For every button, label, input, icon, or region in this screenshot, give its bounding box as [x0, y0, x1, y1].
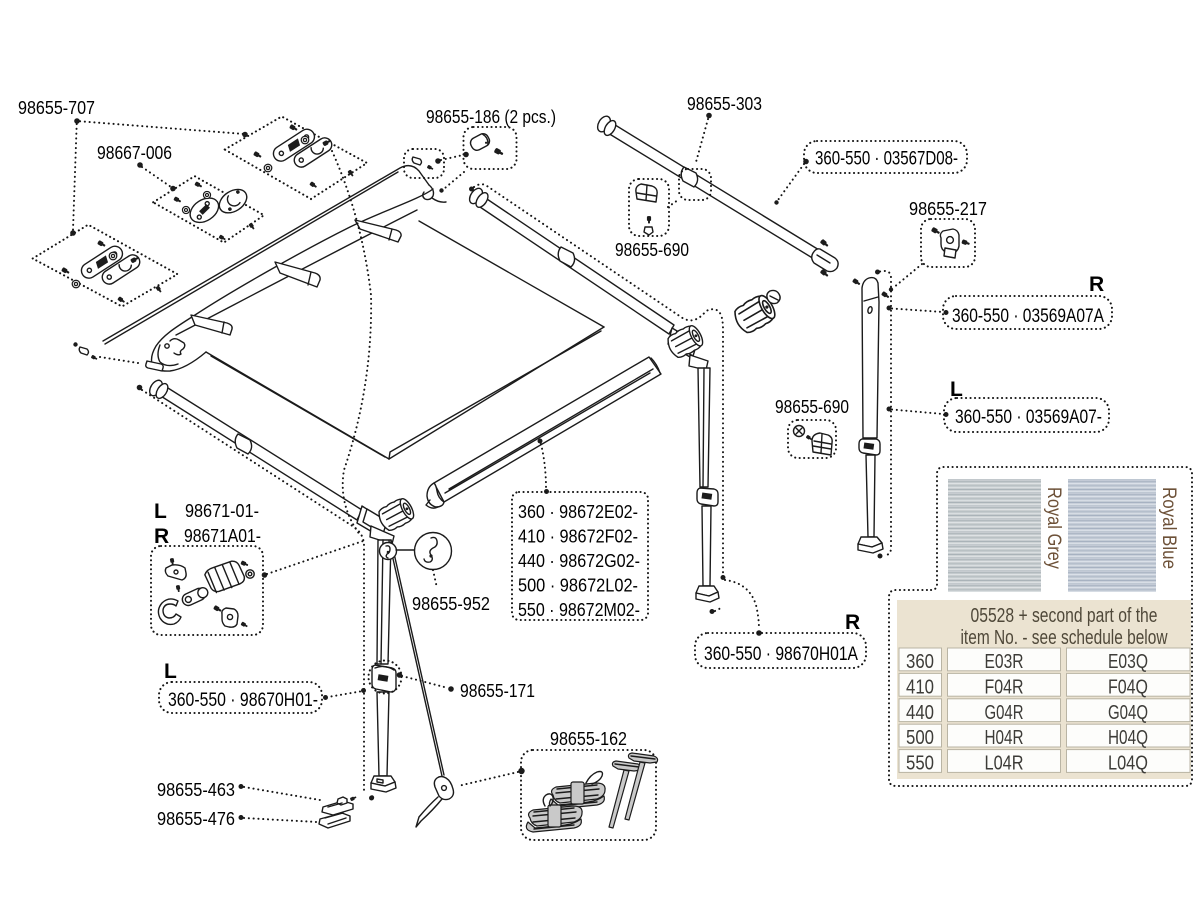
svg-text:R: R: [1089, 273, 1104, 296]
svg-text:98655-463: 98655-463: [157, 779, 235, 800]
svg-text:Royal Blue: Royal Blue: [1158, 487, 1179, 569]
svg-text:L: L: [154, 500, 167, 523]
svg-text:98655-171: 98655-171: [460, 680, 535, 701]
svg-text:98671-01-: 98671-01-: [185, 500, 259, 521]
svg-text:L04R: L04R: [985, 752, 1024, 775]
svg-text:98655-952: 98655-952: [412, 593, 490, 614]
svg-text:550 · 98672M02-: 550 · 98672M02-: [518, 599, 640, 620]
svg-text:500 · 98672L02-: 500 · 98672L02-: [518, 575, 638, 596]
svg-text:98667-006: 98667-006: [97, 142, 172, 163]
svg-text:H04R: H04R: [985, 726, 1024, 749]
svg-text:Royal Grey: Royal Grey: [1043, 487, 1064, 569]
svg-text:E03R: E03R: [985, 650, 1024, 673]
svg-text:360-550 · 98670H01-: 360-550 · 98670H01-: [168, 690, 318, 711]
svg-text:360 · 98672E02-: 360 · 98672E02-: [518, 501, 638, 522]
svg-text:L04Q: L04Q: [1108, 752, 1148, 775]
svg-text:R: R: [154, 525, 169, 548]
svg-text:L: L: [164, 660, 177, 683]
svg-text:98655-707: 98655-707: [18, 97, 95, 118]
svg-text:360-550 · 98670H01A: 360-550 · 98670H01A: [704, 644, 858, 665]
svg-text:440: 440: [906, 701, 934, 724]
svg-text:550: 550: [906, 752, 934, 775]
svg-text:G04R: G04R: [985, 701, 1024, 724]
svg-text:360-550 · 03569A07-: 360-550 · 03569A07-: [955, 407, 1102, 428]
svg-text:E03Q: E03Q: [1108, 650, 1148, 673]
svg-text:98655-690: 98655-690: [775, 396, 849, 417]
svg-text:410 · 98672F02-: 410 · 98672F02-: [518, 526, 638, 547]
svg-text:R: R: [845, 611, 860, 634]
svg-text:360: 360: [906, 650, 934, 673]
svg-text:F04R: F04R: [985, 675, 1024, 698]
svg-text:500: 500: [906, 726, 934, 749]
svg-text:98655-186 (2 pcs.): 98655-186 (2 pcs.): [426, 106, 556, 127]
svg-text:98655-303: 98655-303: [687, 93, 762, 114]
svg-text:410: 410: [906, 675, 934, 698]
svg-text:98655-690: 98655-690: [615, 239, 689, 260]
svg-text:440 · 98672G02-: 440 · 98672G02-: [518, 550, 640, 571]
svg-text:98655-162: 98655-162: [550, 728, 627, 749]
svg-text:98671A01-: 98671A01-: [184, 525, 261, 546]
svg-text:98655-476: 98655-476: [157, 808, 235, 829]
svg-text:360-550 · 03569A07A: 360-550 · 03569A07A: [952, 306, 1104, 327]
svg-text:98655-217: 98655-217: [909, 198, 987, 219]
svg-text:F04Q: F04Q: [1108, 675, 1148, 698]
svg-text:item No. - see schedule below: item No. - see schedule below: [961, 626, 1168, 649]
svg-text:G04Q: G04Q: [1108, 701, 1148, 724]
svg-text:05528 + second part of the: 05528 + second part of the: [971, 604, 1158, 627]
svg-text:360-550 · 03567D08-: 360-550 · 03567D08-: [815, 149, 958, 170]
svg-text:H04Q: H04Q: [1108, 726, 1148, 749]
